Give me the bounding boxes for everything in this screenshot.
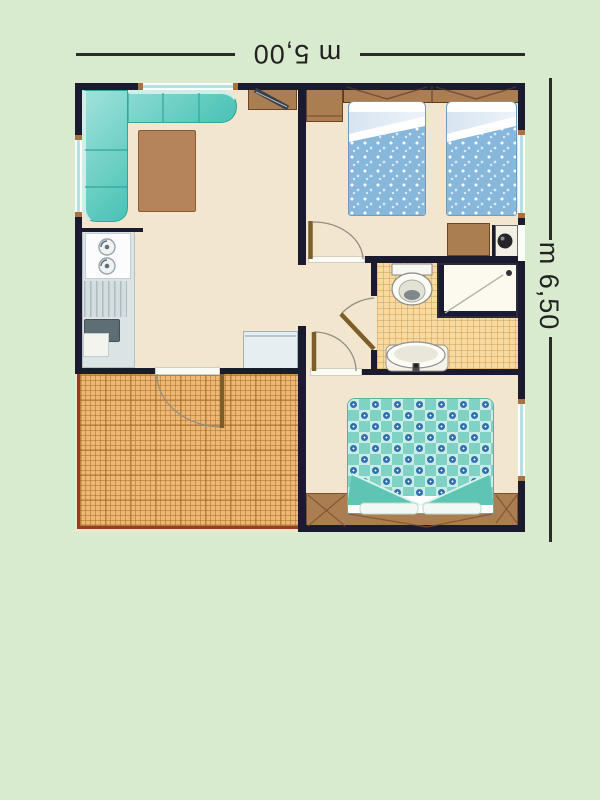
stove-burners-icon <box>99 239 115 274</box>
tv-icon <box>255 90 288 108</box>
door-swing-arcs <box>157 222 374 427</box>
bathroom-door-arc <box>341 298 374 314</box>
dimension-line-top-left <box>76 53 235 56</box>
wardrobe-marks <box>307 86 516 116</box>
dimension-label-height: m 6,50 <box>531 206 567 366</box>
double-bed-folds <box>347 474 494 514</box>
dimension-line-right-bottom <box>549 337 552 542</box>
dimension-label-width: m 5,00 <box>217 36 377 72</box>
dimension-line-top-right <box>360 53 525 56</box>
twin-bedroom-door-arc <box>313 222 363 259</box>
toilet-icon <box>392 264 432 305</box>
floor-plan <box>75 83 525 532</box>
terrace-door-arc <box>157 374 222 427</box>
sofa-dividers <box>85 93 199 187</box>
shower-detail <box>445 270 512 313</box>
double-bedroom-door-arc <box>314 332 356 371</box>
fixtures-overlay <box>75 83 525 532</box>
corner-washbasin-icon <box>498 234 513 249</box>
door-leaves <box>222 221 374 428</box>
washbasin-icon <box>386 342 448 372</box>
floor-plan-illustration: m 5,00 m 6,50 <box>0 0 600 800</box>
bathroom-door-leaf <box>341 314 374 349</box>
